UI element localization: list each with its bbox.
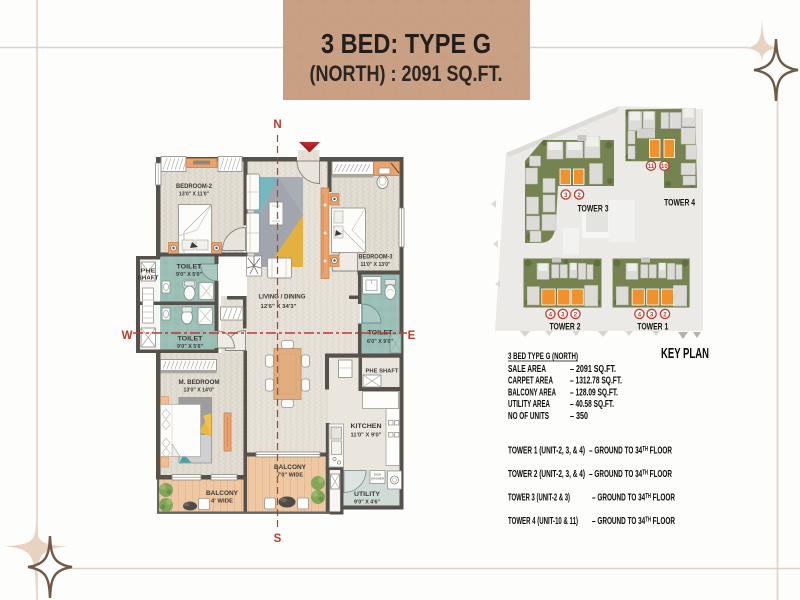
svg-text:4: 4 (549, 311, 553, 318)
svg-text:S: S (274, 533, 282, 545)
svg-text:BALCONY AREA: BALCONY AREA (508, 387, 556, 398)
svg-text:BEDROOM-3: BEDROOM-3 (359, 254, 393, 261)
svg-text:KITCHEN: KITCHEN (351, 423, 383, 430)
svg-text:11'0" X 13'0": 11'0" X 13'0" (361, 262, 391, 268)
svg-text:KEY PLAN: KEY PLAN (661, 346, 709, 362)
svg-text:3: 3 (564, 192, 568, 199)
svg-text:10: 10 (661, 164, 668, 170)
svg-text:2: 2 (577, 192, 581, 199)
svg-text:9'0" X 5'6": 9'0" X 5'6" (177, 344, 203, 350)
svg-text:– GROUND TO 34ᵀᴴ FLOOR: – GROUND TO 34ᵀᴴ FLOOR (589, 469, 672, 480)
svg-text:3: 3 (561, 311, 565, 318)
svg-text:TOWER 1: TOWER 1 (637, 321, 668, 331)
svg-text:TOILET: TOILET (178, 337, 203, 343)
svg-text:BEDROOM-2: BEDROOM-2 (176, 183, 213, 190)
svg-text:11'0" X 9'0": 11'0" X 9'0" (351, 433, 382, 439)
svg-text:– GROUND TO 34ᵀᴴ FLOOR: – GROUND TO 34ᵀᴴ FLOOR (589, 446, 672, 457)
svg-text:13'0" X 14'0": 13'0" X 14'0" (184, 388, 215, 394)
svg-text:(NORTH) : 2091 SQ.FT.: (NORTH) : 2091 SQ.FT. (310, 61, 503, 86)
svg-text:– GROUND TO 34ᵀᴴ FLOOR: – GROUND TO 34ᵀᴴ FLOOR (592, 516, 675, 527)
svg-text:3 BED: TYPE G: 3 BED: TYPE G (321, 28, 491, 59)
svg-text:– 40.58 SQ.FT.: – 40.58 SQ.FT. (570, 399, 614, 410)
svg-text:13'0" X 11'0": 13'0" X 11'0" (179, 192, 209, 198)
svg-text:3 BED TYPE G (NORTH): 3 BED TYPE G (NORTH) (508, 351, 578, 361)
svg-text:N: N (273, 119, 281, 131)
svg-text:12'6" X 34'3": 12'6" X 34'3" (261, 304, 297, 310)
svg-text:TOWER 3: TOWER 3 (578, 204, 609, 214)
svg-text:UTILITY: UTILITY (354, 492, 380, 498)
svg-text:– 1312.78 SQ.FT.: – 1312.78 SQ.FT. (570, 376, 622, 387)
svg-text:WASHER: WASHER (371, 477, 385, 481)
svg-text:11: 11 (648, 164, 655, 170)
svg-text:4' WIDE: 4' WIDE (211, 499, 233, 505)
svg-text:TOWER 3 (UNIT-2 & 3): TOWER 3 (UNIT-2 & 3) (508, 493, 570, 504)
svg-text:CARPET AREA: CARPET AREA (508, 376, 553, 387)
svg-text:6'0" X 9'0": 6'0" X 9'0" (367, 339, 393, 345)
svg-text:LIVING / DINING: LIVING / DINING (259, 294, 306, 301)
svg-text:2: 2 (574, 311, 578, 318)
svg-text:– 128.09 SQ.FT.: – 128.09 SQ.FT. (570, 387, 618, 398)
svg-text:TOWER 2: TOWER 2 (550, 321, 581, 331)
svg-text:PHE SHAFT: PHE SHAFT (366, 369, 399, 375)
svg-text:9'0" X 5'0": 9'0" X 5'0" (176, 272, 202, 278)
svg-text:W: W (122, 330, 133, 342)
svg-text:E: E (408, 330, 416, 342)
svg-text:M. BEDROOM: M. BEDROOM (179, 379, 220, 386)
svg-text:– 2091 SQ.FT.: – 2091 SQ.FT. (570, 364, 616, 375)
svg-text:SHAFT: SHAFT (138, 276, 160, 282)
svg-text:TOILET: TOILET (177, 265, 202, 271)
svg-text:BALCONY: BALCONY (206, 491, 238, 497)
svg-text:2: 2 (663, 311, 667, 318)
svg-text:TOWER 2 (UNIT-2, 3, & 4): TOWER 2 (UNIT-2, 3, & 4) (508, 469, 585, 480)
svg-text:NO OF UNITS: NO OF UNITS (508, 411, 549, 422)
svg-text:TOWER 1 (UNIT-2, 3, & 4): TOWER 1 (UNIT-2, 3, & 4) (508, 446, 585, 457)
svg-text:3: 3 (650, 311, 654, 318)
svg-text:PHE: PHE (141, 269, 156, 275)
svg-text:4: 4 (638, 311, 642, 318)
svg-text:– GROUND TO 34ᵀᴴ FLOOR: – GROUND TO 34ᵀᴴ FLOOR (592, 493, 675, 504)
svg-text:7'0" WIDE: 7'0" WIDE (277, 473, 303, 479)
svg-text:BALCONY: BALCONY (274, 465, 306, 471)
svg-text:TOWER 4: TOWER 4 (664, 198, 695, 208)
svg-text:TOWER 4 (UNIT-10 & 11): TOWER 4 (UNIT-10 & 11) (508, 516, 578, 527)
svg-text:– 350: – 350 (570, 411, 588, 422)
svg-text:UTILITY AREA: UTILITY AREA (508, 399, 550, 410)
svg-text:SALE AREA: SALE AREA (508, 364, 546, 375)
svg-text:9'0" X 4'6": 9'0" X 4'6" (354, 500, 380, 506)
